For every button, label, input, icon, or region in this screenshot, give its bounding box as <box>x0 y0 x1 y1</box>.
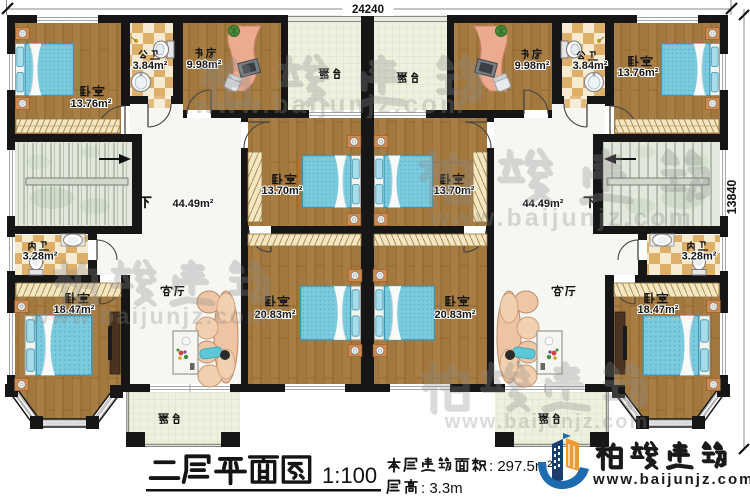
svg-text:24240: 24240 <box>352 4 384 16</box>
svg-text:9.98m²: 9.98m² <box>515 60 550 72</box>
svg-text:3.84m²: 3.84m² <box>133 60 168 72</box>
svg-text:18.47m²: 18.47m² <box>638 304 679 316</box>
svg-text:www.baijunjz.com: www.baijunjz.com <box>30 303 270 329</box>
svg-text:www.baijunjz.com: www.baijunjz.com <box>592 471 750 488</box>
svg-text:www.baijunjz.com: www.baijunjz.com <box>444 411 650 433</box>
svg-text:13.70m²: 13.70m² <box>262 185 303 197</box>
svg-text:3.84m²: 3.84m² <box>573 60 608 72</box>
svg-text:www.baijunjz.com: www.baijunjz.com <box>429 204 694 232</box>
svg-text:1:100: 1:100 <box>322 463 377 488</box>
svg-text:3.28m²: 3.28m² <box>682 251 717 263</box>
svg-text:13840: 13840 <box>725 180 739 215</box>
svg-text:3.28m²: 3.28m² <box>23 251 58 263</box>
svg-text:13.76m²: 13.76m² <box>618 67 659 79</box>
svg-text:44.49m²: 44.49m² <box>173 198 214 210</box>
svg-text:13.76m²: 13.76m² <box>71 98 112 110</box>
svg-text:: 3.3m: : 3.3m <box>421 480 463 497</box>
svg-text:20.83m²: 20.83m² <box>435 309 476 321</box>
svg-text:www.baijunjz.com: www.baijunjz.com <box>193 89 466 119</box>
